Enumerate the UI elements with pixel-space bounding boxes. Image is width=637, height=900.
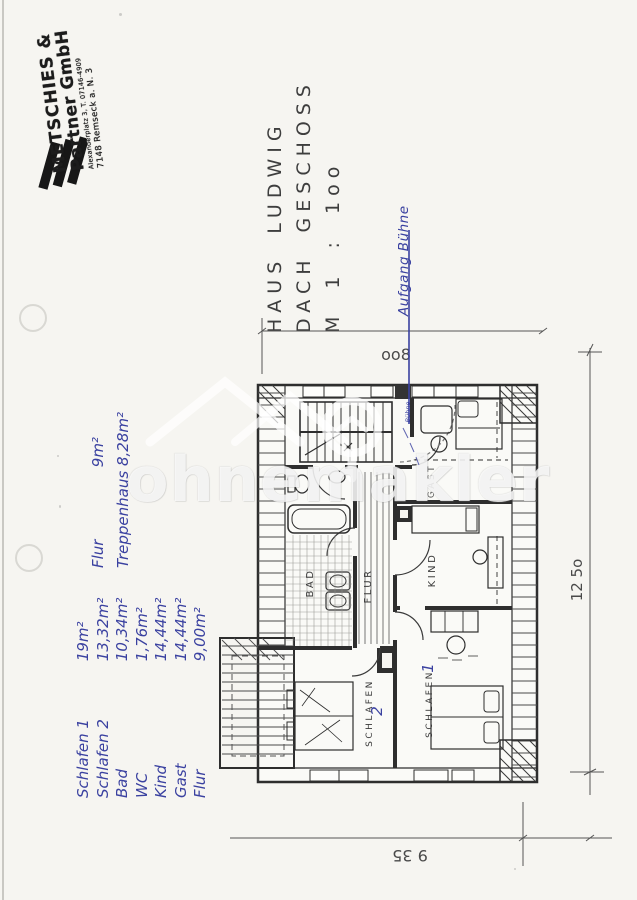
schlafen1-number-mark: 1 [419,663,437,673]
aufgang-arrow-dashes [403,428,419,465]
attic-note-text: Bühne [404,402,412,423]
scanned-floorplan-page: oo8 12 5o 9 35 [0,0,637,900]
blue-ink-layer: Bühne 2 1 [0,0,637,900]
schlafen2-number-mark: 2 [368,706,386,716]
